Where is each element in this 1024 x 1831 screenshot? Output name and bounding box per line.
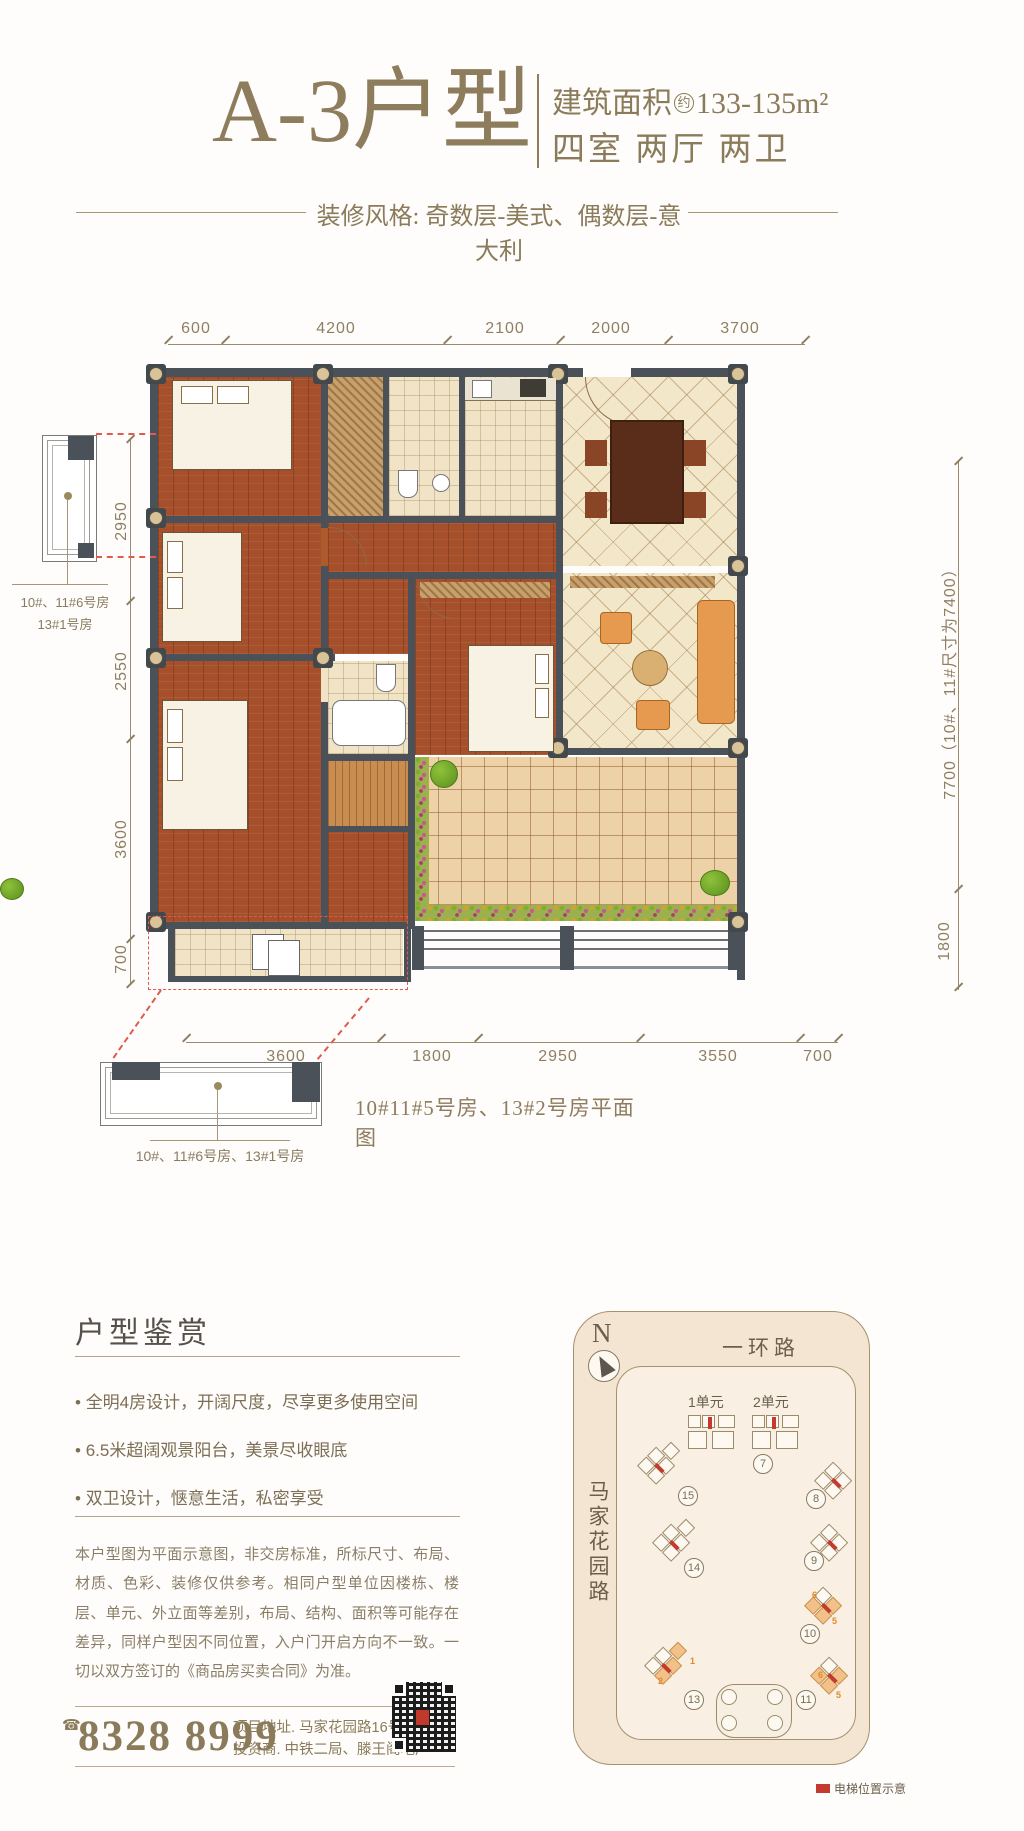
- area-line: 建筑面积约133-135m²: [552, 78, 828, 118]
- tick: [556, 335, 565, 344]
- room-closet: [328, 376, 383, 516]
- room-passage: [328, 832, 408, 922]
- leader-line: [217, 1090, 218, 1140]
- dining-chair: [684, 440, 706, 466]
- wall: [150, 368, 745, 377]
- railing-post: [412, 926, 424, 970]
- tick: [443, 335, 452, 344]
- balcony-planter-bottom: [415, 905, 737, 921]
- dim-top-4200: 4200: [308, 320, 364, 338]
- heading-rule: [75, 1356, 460, 1357]
- sink: [432, 474, 450, 492]
- dining-chair: [585, 440, 607, 466]
- sofa: [697, 600, 735, 724]
- red-callout-leader: [113, 989, 162, 1058]
- railing-line: [412, 948, 737, 950]
- building-8-number[interactable]: 8: [806, 1489, 826, 1509]
- bay-detail-block: [112, 1062, 160, 1080]
- clubhouse: [716, 1684, 792, 1738]
- page-title: A-3户型: [212, 58, 542, 168]
- bay-detail-block: [78, 543, 94, 558]
- column-marker: [728, 556, 748, 576]
- compass-icon: [588, 1350, 620, 1382]
- plant: [0, 878, 24, 900]
- wall: [150, 516, 562, 523]
- bay-detail-top-label: 10#、11#6号房 13#1号房: [2, 592, 128, 636]
- leader-line: [150, 1140, 290, 1141]
- wall: [383, 377, 389, 523]
- tick: [182, 1033, 191, 1042]
- building-10-digit-5: 5: [832, 1616, 837, 1626]
- room-balcony: [415, 757, 737, 905]
- column-marker: [146, 508, 166, 528]
- column-marker: [146, 648, 166, 668]
- column-marker: [313, 648, 333, 668]
- toilet: [376, 664, 396, 692]
- tv-cabinet: [570, 576, 715, 588]
- dim-left-700: 700: [113, 929, 131, 989]
- dim-top-2000: 2000: [583, 320, 639, 338]
- door-gap: [583, 368, 631, 377]
- dim-line-bottom: [186, 1042, 838, 1043]
- wall: [321, 826, 415, 832]
- kitchen-sink: [472, 380, 492, 398]
- coffee-table: [632, 650, 668, 686]
- tick: [796, 1033, 805, 1042]
- bullet-text: 全明4房设计，开阔尺度，尽享更多使用空间: [86, 1393, 418, 1412]
- contact-rule-bottom: [75, 1766, 455, 1767]
- bed-4: [162, 700, 248, 830]
- qr-logo: [416, 1710, 429, 1725]
- rooms-label: 四室 两厅 两卫: [552, 122, 791, 170]
- building-15-number[interactable]: 15: [678, 1486, 698, 1506]
- leader-dot: [64, 492, 72, 500]
- tick: [221, 335, 230, 344]
- building-11-digit-5: 5: [836, 1690, 841, 1700]
- tick: [664, 335, 673, 344]
- building-7-unit1[interactable]: [688, 1415, 740, 1455]
- armchair: [636, 700, 670, 730]
- tick: [474, 1033, 483, 1042]
- building-14-number[interactable]: 14: [684, 1558, 704, 1578]
- room-corridor: [328, 579, 408, 654]
- dining-chair: [585, 492, 607, 518]
- wall: [150, 368, 158, 926]
- bay-detail-top-label-2: 13#1号房: [2, 614, 128, 636]
- door-gap: [321, 528, 328, 566]
- dim-bottom-3550: 3550: [690, 1048, 746, 1066]
- tick: [377, 1033, 386, 1042]
- dining-chair: [684, 492, 706, 518]
- dim-bottom-1800: 1800: [404, 1048, 460, 1066]
- building-13-number[interactable]: 13: [684, 1690, 704, 1710]
- dim-left-2950: 2950: [113, 491, 131, 551]
- dim-bottom-700: 700: [790, 1048, 846, 1066]
- elevator-legend-icon: [816, 1784, 830, 1793]
- tick: [636, 1033, 645, 1042]
- dim-left-2550: 2550: [113, 641, 131, 701]
- building-13-digit-2: 2: [658, 1676, 663, 1686]
- wall: [321, 754, 415, 761]
- building-7-unit2[interactable]: [752, 1415, 804, 1455]
- bay-detail-block: [68, 436, 94, 460]
- road-top-label[interactable]: 一环路: [722, 1332, 800, 1362]
- unit-2-label: 2单元: [753, 1392, 789, 1412]
- wall: [556, 748, 744, 755]
- bullet-text: 双卫设计，惬意生活，私密享受: [86, 1489, 324, 1508]
- wall: [408, 579, 415, 926]
- red-callout-line: [96, 433, 156, 435]
- road-left-label[interactable]: 马家花园路: [583, 1480, 613, 1605]
- column-marker: [728, 738, 748, 758]
- railing-post: [560, 926, 574, 970]
- column-marker: [146, 364, 166, 384]
- column-marker: [313, 364, 333, 384]
- plant: [430, 760, 458, 788]
- wall: [556, 377, 563, 573]
- bullet-item: • 全明4房设计，开阔尺度，尽享更多使用空间: [75, 1388, 475, 1413]
- railing-line: [412, 966, 737, 969]
- dining-table: [610, 420, 684, 524]
- bay-detail-top-label-1: 10#、11#6号房: [2, 592, 128, 614]
- building-9-number[interactable]: 9: [804, 1551, 824, 1571]
- elevator-legend-label: 电梯位置示意: [834, 1780, 906, 1797]
- building-7-number[interactable]: 7: [753, 1454, 773, 1474]
- room-laundry: [328, 761, 408, 826]
- plant: [700, 870, 730, 896]
- building-13-digit-1: 1: [690, 1656, 695, 1666]
- wall: [321, 572, 563, 579]
- toilet: [398, 470, 418, 498]
- door-gap: [321, 668, 328, 702]
- leader-dot: [214, 1082, 222, 1090]
- bed-2: [162, 532, 242, 642]
- column-marker: [728, 912, 748, 932]
- red-callout-leader: [317, 997, 370, 1060]
- railing-line: [412, 939, 737, 941]
- plan-caption: 10#11#5号房、13#2号房平面图: [355, 1092, 655, 1152]
- armchair: [600, 612, 632, 644]
- dim-bottom-2950: 2950: [530, 1048, 586, 1066]
- building-10-number[interactable]: 10: [800, 1624, 820, 1644]
- bay-detail-bottom-label: 10#、11#6号房、13#1号房: [110, 1146, 330, 1166]
- bathtub: [332, 700, 406, 746]
- style-note: 装修风格: 奇数层-美式、偶数层-意大利: [316, 196, 682, 266]
- header-divider: [537, 74, 539, 168]
- north-label: N: [592, 1318, 612, 1349]
- bed-1: [172, 380, 292, 470]
- building-11-digit-6: 6: [818, 1670, 823, 1680]
- leader-line: [67, 500, 68, 584]
- flyer-page: A-3户型 建筑面积约133-135m² 四室 两厅 两卫 装修风格: 奇数层-…: [0, 0, 1024, 1831]
- dim-right-7700: 7700（10#、11#尺寸为7400）: [936, 560, 960, 800]
- red-callout-box: [148, 916, 408, 990]
- bullet-item: • 双卫设计，惬意生活，私密享受: [75, 1484, 475, 1509]
- balcony-planter-left: [415, 757, 429, 905]
- style-rule-right: [688, 212, 838, 213]
- tick: [801, 335, 810, 344]
- disclaimer-text: 本户型图为平面示意图，非交房标准，所标尺寸、布局、材质、色彩、装修仅供参考。相同…: [75, 1540, 459, 1686]
- railing-post: [728, 926, 740, 970]
- appreciation-heading: 户型鉴赏: [75, 1308, 211, 1352]
- leader-line: [12, 584, 108, 585]
- stove: [520, 379, 546, 397]
- bullet-item: • 6.5米超阔观景阳台，美景尽收眼底: [75, 1436, 475, 1461]
- area-circle-glyph: 约: [674, 93, 694, 113]
- dim-top-600: 600: [171, 320, 221, 338]
- building-11-number[interactable]: 11: [796, 1690, 816, 1710]
- dim-left-3600: 3600: [113, 809, 131, 869]
- wall: [556, 566, 563, 755]
- dim-right-1800: 1800: [936, 911, 954, 971]
- wall: [150, 654, 335, 661]
- bay-detail-block: [292, 1062, 320, 1102]
- red-callout-line: [96, 556, 156, 558]
- area-value: 133-135m²: [696, 87, 828, 120]
- bullet-text: 6.5米超阔观景阳台，美景尽收眼底: [86, 1441, 348, 1460]
- section-rule: [75, 1516, 460, 1517]
- qr-code: [392, 1682, 456, 1752]
- dim-line-top: [168, 344, 805, 345]
- column-marker: [728, 364, 748, 384]
- bed-3: [468, 645, 554, 752]
- unit-1-label: 1单元: [688, 1392, 724, 1412]
- building-10-digit-6: 6: [812, 1590, 817, 1600]
- dim-top-3700: 3700: [712, 320, 768, 338]
- area-prefix: 建筑面积: [552, 87, 672, 120]
- style-rule-left: [76, 212, 306, 213]
- dim-top-2100: 2100: [477, 320, 533, 338]
- railing-line: [412, 930, 737, 932]
- wardrobe: [420, 582, 550, 598]
- tick: [834, 1033, 843, 1042]
